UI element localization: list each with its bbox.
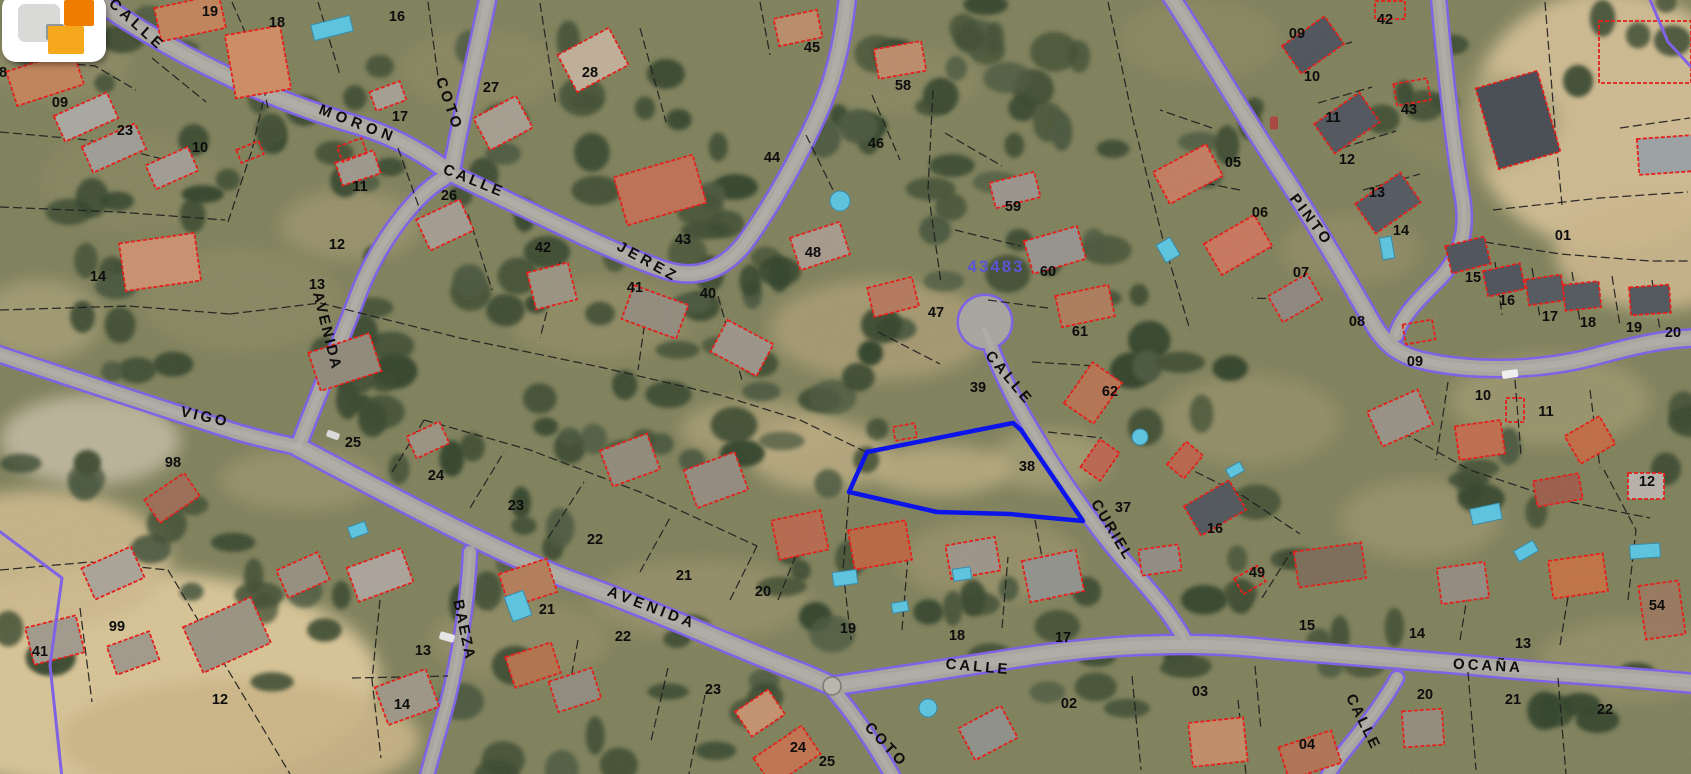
parcel-number-label: 05 <box>1225 155 1241 171</box>
parcel-number-label: 22 <box>615 629 631 645</box>
parcel-number-label: 09 <box>1289 26 1305 42</box>
parcel-number-label: 41 <box>627 280 643 296</box>
parcel-number-label: 47 <box>928 305 944 321</box>
parcel-number-label: 17 <box>1055 630 1071 646</box>
parcel-number-label: 45 <box>804 40 820 56</box>
parcel-number-label: 25 <box>345 435 361 451</box>
parcel-number-label: 03 <box>1192 684 1208 700</box>
parcel-number-label: 42 <box>535 240 551 256</box>
parcel-number-label: 17 <box>1542 309 1558 325</box>
parcel-number-label: 13 <box>309 277 325 293</box>
catastro-logo[interactable] <box>2 0 106 62</box>
parcel-number-label: 21 <box>539 602 555 618</box>
cadastral-reference-label: 43483 <box>967 257 1024 276</box>
parcel-number-label: 62 <box>1102 384 1118 400</box>
parcel-number-label: 24 <box>428 468 444 484</box>
parcel-number-label: 98 <box>165 455 181 471</box>
parcel-number-label: 26 <box>441 188 457 204</box>
parcel-number-label: 16 <box>1207 521 1223 537</box>
parcel-number-label: 20 <box>755 584 771 600</box>
aerial-cadastral-map[interactable]: CALLEMORONCOTOCALLEJEREZAVENIDAVIGOPINTO… <box>0 0 1691 774</box>
parcel-number-label: 02 <box>1061 696 1077 712</box>
parcel-number-label: 14 <box>394 697 410 713</box>
parcel-number-label: 46 <box>868 136 884 152</box>
parcel-number-label: 13 <box>1515 636 1531 652</box>
parcel-number-label: 11 <box>1325 110 1340 126</box>
parcel-number-label: 14 <box>1393 223 1409 239</box>
parcel-number-label: 11 <box>1538 404 1553 420</box>
parcel-number-label: 40 <box>700 286 716 302</box>
parcel-number-label: 07 <box>1293 265 1309 281</box>
parcel-number-label: 44 <box>764 150 780 166</box>
parcel-number-label: 04 <box>1299 737 1315 753</box>
parcel-number-label: 23 <box>117 123 133 139</box>
parcel-number-label: 19 <box>202 4 218 20</box>
parcel-number-label: 16 <box>1499 293 1515 309</box>
parcel-number-label: 13 <box>1369 185 1385 201</box>
parcel-number-label: 08 <box>1349 314 1365 330</box>
parcel-number-label: 41 <box>32 644 48 660</box>
parcel-number-label: 58 <box>895 78 911 94</box>
parcel-number-label: 19 <box>840 621 856 637</box>
parcel-number-label: 15 <box>1299 618 1315 634</box>
parcel-number-label: 15 <box>1465 270 1481 286</box>
parcel-number-label: 11 <box>352 179 367 195</box>
parcel-number-label: 14 <box>90 269 106 285</box>
parcel-number-label: 23 <box>705 682 721 698</box>
parcel-number-label: 12 <box>1639 474 1655 490</box>
parcel-number-label: 19 <box>1626 320 1642 336</box>
cadastral-map-viewport[interactable]: CALLEMORONCOTOCALLEJEREZAVENIDAVIGOPINTO… <box>0 0 1691 774</box>
parcel-number-label: 59 <box>1005 199 1021 215</box>
parcel-number-label: 09 <box>1407 354 1423 370</box>
parcel-number-label: 22 <box>1597 702 1613 718</box>
parcel-number-label: 27 <box>483 80 499 96</box>
parcel-number-label: 20 <box>1665 325 1681 341</box>
catastro-logo-square <box>48 26 84 54</box>
parcel-number-label: 54 <box>1649 598 1665 614</box>
parcel-number-label: 18 <box>269 15 285 31</box>
parcel-number-label: 01 <box>1555 228 1571 244</box>
parcel-number-label: 42 <box>1377 12 1393 28</box>
parcel-number-label: 09 <box>52 95 68 111</box>
parcel-number-label: 22 <box>587 532 603 548</box>
parcel-number-label: 60 <box>1040 264 1056 280</box>
parcel-number-label: 18 <box>1580 315 1596 331</box>
parcel-number-label: 25 <box>819 754 835 770</box>
parcel-number-label: 16 <box>389 9 405 25</box>
parcel-number-label: 12 <box>329 237 345 253</box>
parcel-number-label: 10 <box>1475 388 1491 404</box>
parcel-number-label: 13 <box>415 643 431 659</box>
parcel-number-label: 8 <box>0 65 7 81</box>
parcel-number-label: 43 <box>1401 102 1417 118</box>
parcel-number-label: 23 <box>508 498 524 514</box>
parcel-number-label: 17 <box>392 109 408 125</box>
parcel-number-label: 21 <box>1505 692 1521 708</box>
photo-grain <box>0 0 1691 774</box>
parcel-number-label: 20 <box>1417 687 1433 703</box>
parcel-number-label: 10 <box>192 140 208 156</box>
parcel-number-label: 43 <box>675 232 691 248</box>
parcel-number-label: 37 <box>1115 500 1131 516</box>
parcel-number-label: 06 <box>1252 205 1268 221</box>
parcel-number-label: 48 <box>805 245 821 261</box>
street-name-label: OCAÑA <box>1453 655 1524 677</box>
parcel-number-label: 38 <box>1019 459 1035 475</box>
parcel-number-label: 49 <box>1249 565 1265 581</box>
parcel-number-label: 12 <box>1339 152 1355 168</box>
parcel-number-label: 99 <box>109 619 125 635</box>
parcel-number-label: 10 <box>1304 69 1320 85</box>
catastro-logo-square <box>64 0 94 26</box>
parcel-number-label: 14 <box>1409 626 1425 642</box>
parcel-number-label: 18 <box>949 628 965 644</box>
parcel-number-label: 39 <box>970 380 986 396</box>
parcel-number-label: 12 <box>212 692 228 708</box>
parcel-number-label: 28 <box>582 65 598 81</box>
parcel-number-label: 21 <box>676 568 692 584</box>
parcel-number-label: 61 <box>1072 324 1088 340</box>
parcel-number-label: 24 <box>790 740 806 756</box>
